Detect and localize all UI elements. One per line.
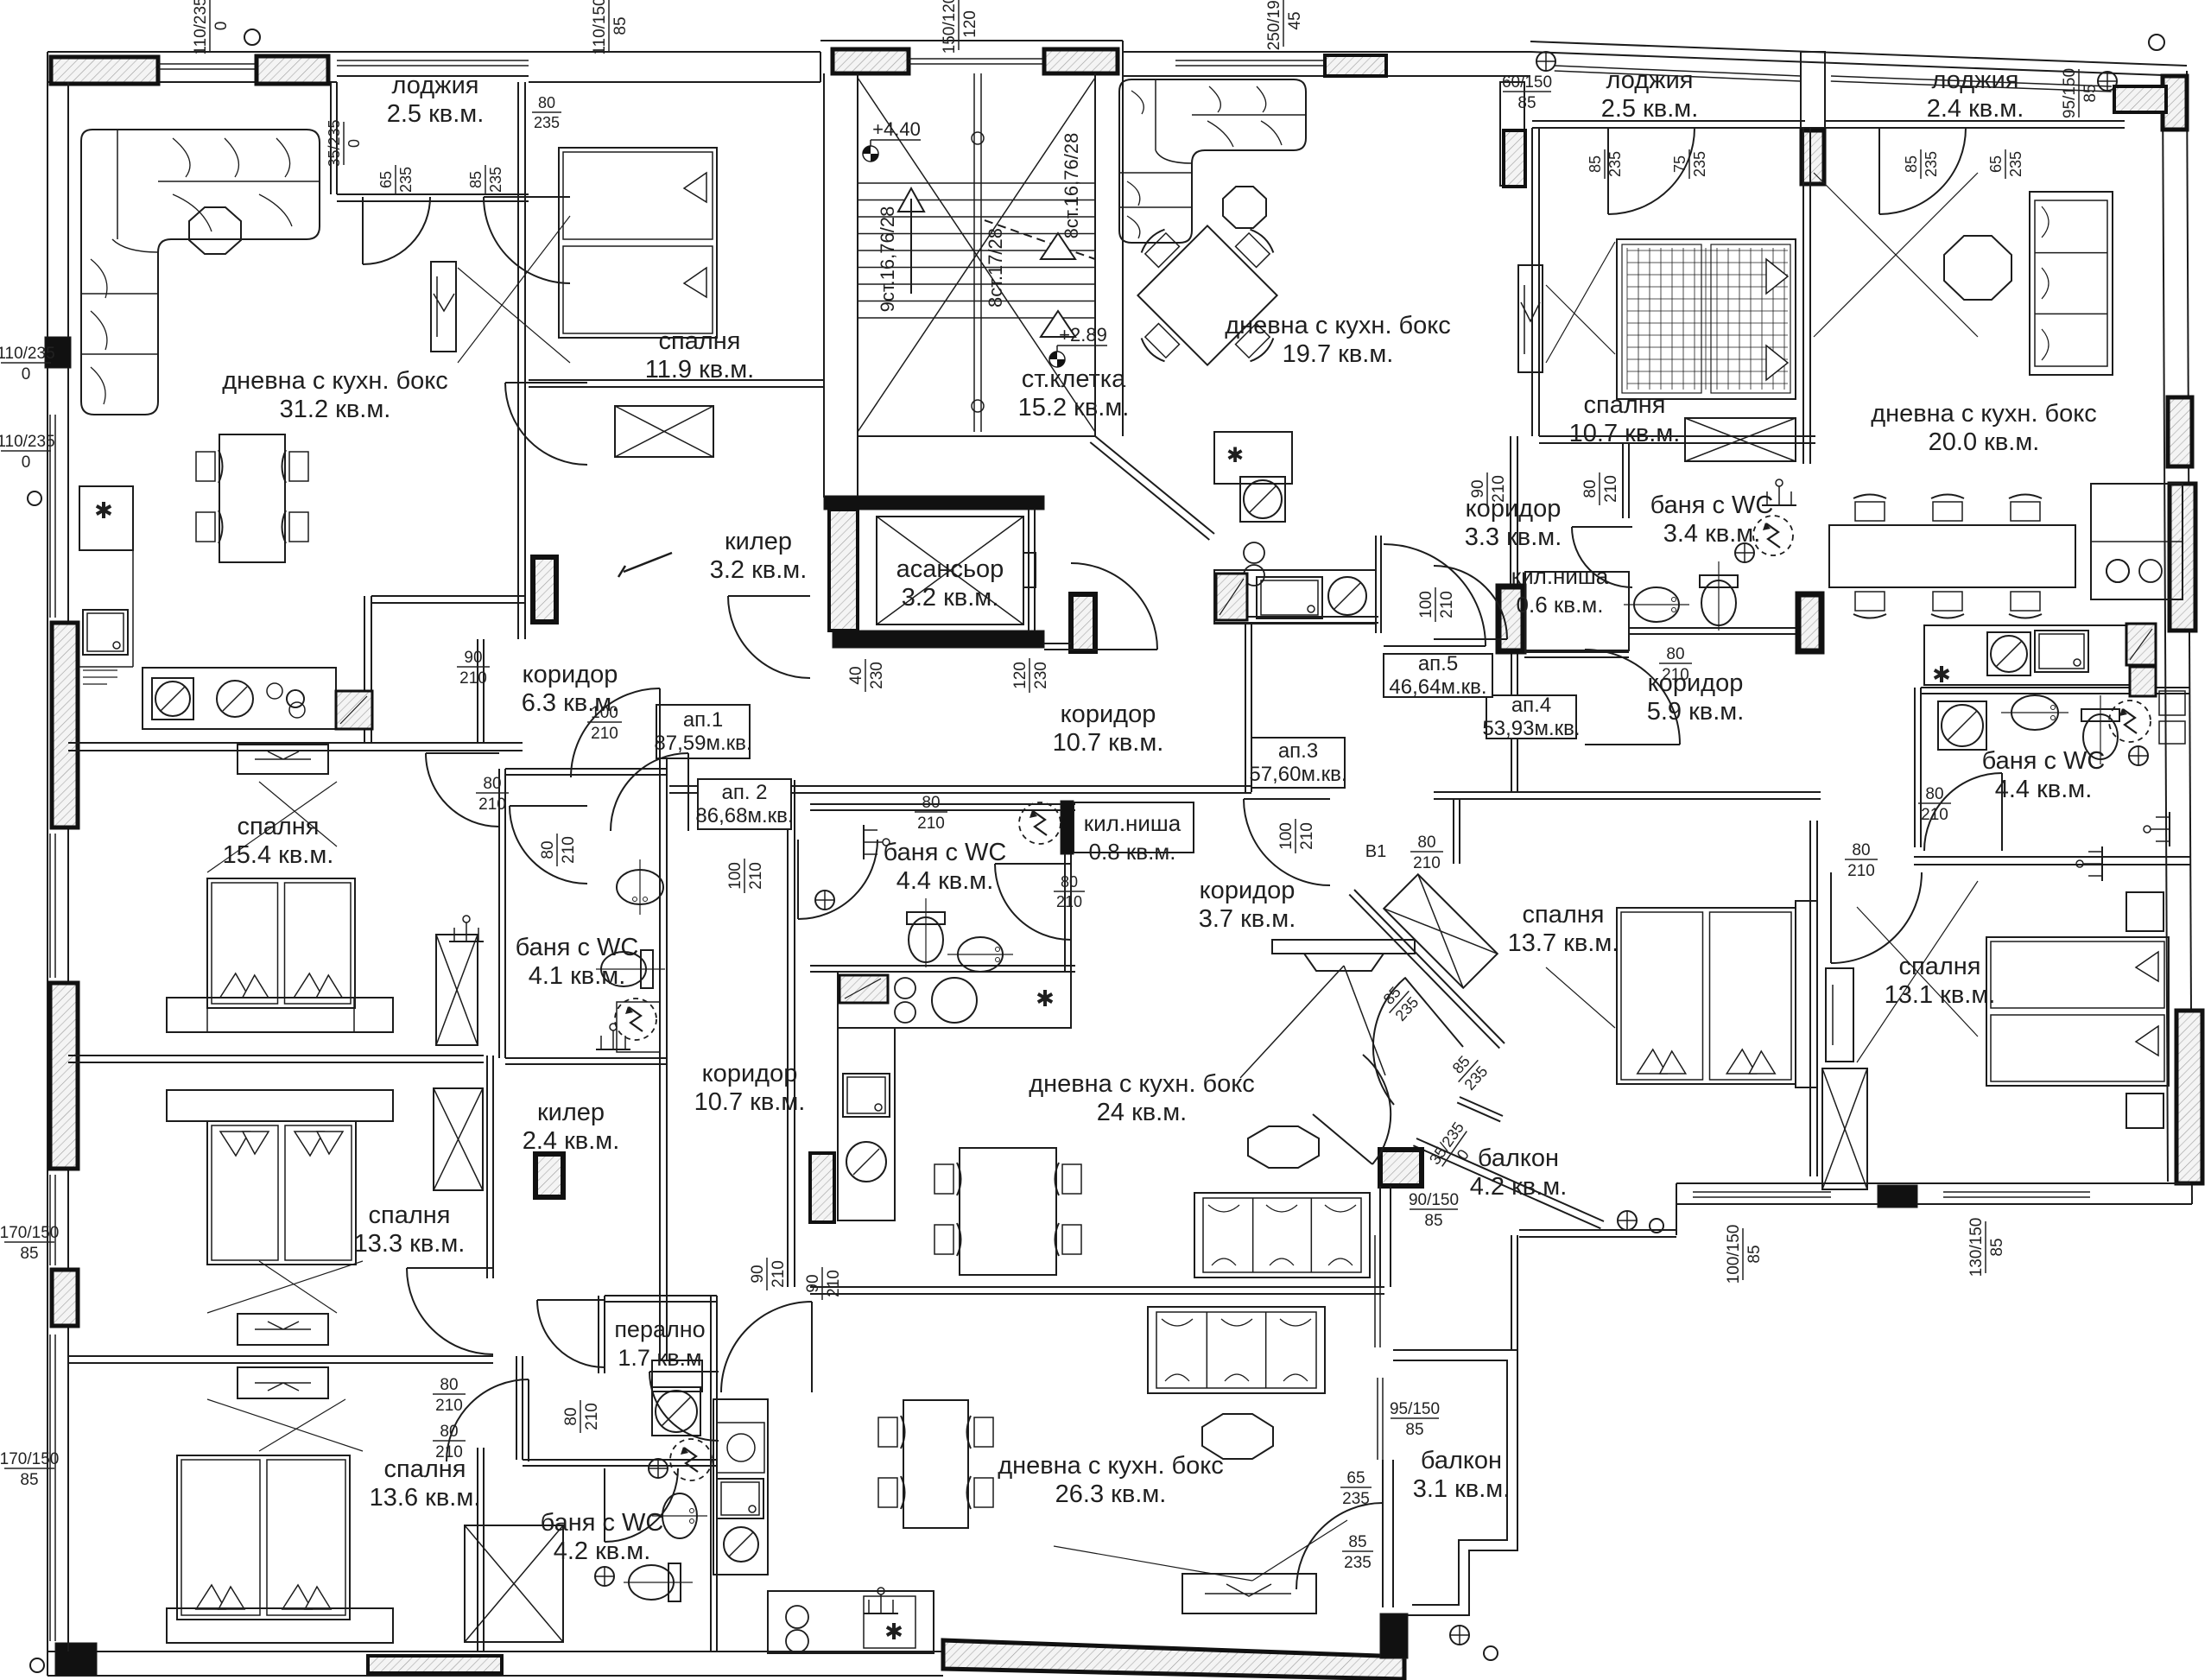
svg-text:210: 210 <box>459 669 487 688</box>
svg-text:235: 235 <box>534 114 560 131</box>
svg-text:210: 210 <box>435 1443 463 1461</box>
svg-text:спалня: спалня <box>238 813 320 840</box>
svg-text:2.5 кв.м.: 2.5 кв.м. <box>1601 95 1699 123</box>
svg-text:85: 85 <box>1988 1238 2006 1256</box>
svg-text:210: 210 <box>1298 822 1316 850</box>
svg-text:210: 210 <box>1490 475 1508 503</box>
svg-text:80: 80 <box>1061 873 1078 891</box>
svg-text:235: 235 <box>2007 151 2024 177</box>
svg-text:80: 80 <box>922 794 940 812</box>
svg-text:210: 210 <box>435 1397 463 1415</box>
svg-text:4.2 кв.м.: 4.2 кв.м. <box>1470 1173 1568 1201</box>
svg-text:210: 210 <box>591 725 618 743</box>
svg-text:87,59м.кв.: 87,59м.кв. <box>654 732 751 755</box>
svg-text:лоджия: лоджия <box>392 72 479 99</box>
svg-text:3.2 кв.м.: 3.2 кв.м. <box>902 584 999 612</box>
svg-text:4.4 кв.м.: 4.4 кв.м. <box>1995 776 2093 803</box>
svg-text:лоджия: лоджия <box>1606 67 1694 94</box>
svg-text:✱: ✱ <box>1226 444 1244 467</box>
svg-text:24 кв.м.: 24 кв.м. <box>1097 1099 1187 1126</box>
svg-text:86,68м.кв.: 86,68м.кв. <box>695 804 793 827</box>
svg-text:80: 80 <box>1666 645 1684 663</box>
svg-text:дневна с кухн. бокс: дневна с кухн. бокс <box>1029 1070 1255 1098</box>
svg-text:ап. 2: ап. 2 <box>721 781 767 804</box>
svg-text:коридор: коридор <box>702 1060 798 1087</box>
svg-text:90: 90 <box>464 649 482 667</box>
svg-text:спалня: спалня <box>1523 901 1605 929</box>
svg-text:спалня: спалня <box>1584 391 1666 419</box>
svg-text:110/235: 110/235 <box>0 433 55 451</box>
svg-text:210: 210 <box>1921 806 1948 824</box>
svg-text:90: 90 <box>1469 479 1487 498</box>
svg-text:коридор: коридор <box>1200 877 1296 904</box>
svg-text:75: 75 <box>1671 155 1688 173</box>
svg-text:асансьор: асансьор <box>896 555 1004 583</box>
svg-text:0.6 кв.м.: 0.6 кв.м. <box>1517 592 1604 618</box>
svg-text:210: 210 <box>1662 666 1689 684</box>
svg-text:✱: ✱ <box>1036 986 1055 1011</box>
svg-text:250/190: 250/190 <box>1265 0 1283 50</box>
svg-text:килер: килер <box>537 1099 605 1126</box>
svg-text:коридор: коридор <box>523 661 618 688</box>
svg-text:0: 0 <box>22 453 31 472</box>
svg-text:210: 210 <box>583 1403 601 1430</box>
svg-text:65: 65 <box>377 171 395 188</box>
svg-text:лоджия: лоджия <box>1932 67 2019 94</box>
svg-text:балкон: балкон <box>1421 1447 1502 1474</box>
svg-text:баня с WC: баня с WC <box>541 1509 664 1537</box>
svg-text:19.7 кв.м.: 19.7 кв.м. <box>1283 340 1394 368</box>
svg-text:235: 235 <box>397 167 415 193</box>
svg-text:4.2 кв.м.: 4.2 кв.м. <box>554 1537 651 1565</box>
svg-text:килер: килер <box>725 528 792 555</box>
svg-text:90: 90 <box>804 1274 822 1292</box>
svg-text:235: 235 <box>1606 151 1624 177</box>
svg-text:3.3 кв.м.: 3.3 кв.м. <box>1465 523 1562 551</box>
svg-text:95/150: 95/150 <box>1390 1400 1440 1418</box>
svg-text:85: 85 <box>2081 84 2100 102</box>
svg-text:100: 100 <box>726 862 744 890</box>
svg-text:ап.5: ап.5 <box>1418 652 1458 675</box>
svg-text:85: 85 <box>20 1471 38 1489</box>
svg-text:баня с WC: баня с WC <box>1650 491 1774 519</box>
svg-text:13.3 кв.м.: 13.3 кв.м. <box>354 1230 466 1258</box>
svg-text:120: 120 <box>1011 662 1029 689</box>
svg-text:8ст.16,76/28: 8ст.16,76/28 <box>1061 133 1082 239</box>
svg-text:235: 235 <box>487 167 504 193</box>
svg-text:спалня: спалня <box>369 1201 451 1229</box>
svg-text:коридор: коридор <box>1466 495 1562 523</box>
svg-text:+4.40: +4.40 <box>872 118 921 140</box>
svg-text:85: 85 <box>467 171 485 188</box>
svg-text:26.3 кв.м.: 26.3 кв.м. <box>1055 1480 1167 1508</box>
svg-text:210: 210 <box>478 796 506 814</box>
svg-text:210: 210 <box>1438 591 1456 618</box>
svg-text:100/150: 100/150 <box>1725 1225 1743 1284</box>
svg-text:15.2 кв.м.: 15.2 кв.м. <box>1018 394 1130 422</box>
svg-text:40: 40 <box>847 666 865 684</box>
svg-text:100: 100 <box>591 704 618 722</box>
svg-text:53,93м.кв.: 53,93м.кв. <box>1482 717 1580 740</box>
svg-text:235: 235 <box>1342 1490 1370 1508</box>
svg-text:80: 80 <box>1925 785 1943 803</box>
svg-text:3.1 кв.м.: 3.1 кв.м. <box>1413 1475 1511 1503</box>
svg-text:ст.клетка: ст.клетка <box>1022 365 1126 393</box>
svg-text:90/150: 90/150 <box>1409 1191 1459 1209</box>
svg-text:баня с WC: баня с WC <box>516 934 639 961</box>
svg-text:80: 80 <box>440 1376 458 1394</box>
svg-text:85: 85 <box>1903 155 1920 173</box>
svg-text:65: 65 <box>1346 1469 1365 1487</box>
svg-text:45: 45 <box>1286 11 1304 29</box>
svg-text:110/235: 110/235 <box>0 345 55 363</box>
svg-text:95/150: 95/150 <box>2061 68 2079 118</box>
svg-text:110/150: 110/150 <box>591 0 609 55</box>
svg-text:170/150: 170/150 <box>0 1450 59 1468</box>
svg-text:5.9 кв.м.: 5.9 кв.м. <box>1647 698 1745 726</box>
svg-text:перално: перално <box>614 1316 705 1342</box>
svg-text:3.7 кв.м.: 3.7 кв.м. <box>1199 905 1296 933</box>
svg-text:ап.1: ап.1 <box>683 708 723 732</box>
svg-text:10.7 кв.м.: 10.7 кв.м. <box>1053 729 1164 757</box>
svg-text:0.8 кв.м.: 0.8 кв.м. <box>1089 839 1176 865</box>
svg-text:170/150: 170/150 <box>0 1224 59 1242</box>
svg-text:0: 0 <box>345 139 363 148</box>
svg-text:80: 80 <box>1852 841 1870 859</box>
svg-text:13.7 кв.м.: 13.7 кв.м. <box>1508 929 1619 957</box>
svg-text:B1: B1 <box>1365 842 1386 861</box>
svg-text:✱: ✱ <box>884 1619 903 1645</box>
svg-text:10.7 кв.м.: 10.7 кв.м. <box>694 1088 806 1116</box>
svg-text:210: 210 <box>1602 475 1620 503</box>
svg-text:85: 85 <box>611 16 630 35</box>
svg-text:2.4 кв.м.: 2.4 кв.м. <box>523 1127 620 1155</box>
svg-text:80: 80 <box>562 1407 580 1425</box>
svg-text:8ст.17/28: 8ст.17/28 <box>985 228 1006 307</box>
svg-text:210: 210 <box>825 1270 843 1297</box>
svg-text:85: 85 <box>1745 1245 1764 1263</box>
svg-text:110/235: 110/235 <box>192 0 210 55</box>
svg-text:15.4 кв.м.: 15.4 кв.м. <box>223 841 334 869</box>
svg-text:150/120: 150/120 <box>941 0 959 54</box>
svg-text:235: 235 <box>1344 1554 1372 1572</box>
svg-text:80: 80 <box>483 775 501 793</box>
svg-text:1.7 кв.м: 1.7 кв.м <box>618 1345 701 1371</box>
svg-text:спалня: спалня <box>1899 953 1981 980</box>
svg-text:210: 210 <box>1056 893 1082 910</box>
svg-text:235: 235 <box>1923 151 1940 177</box>
svg-text:80: 80 <box>1581 479 1600 498</box>
svg-text:4.4 кв.м.: 4.4 кв.м. <box>896 867 994 895</box>
svg-text:80: 80 <box>538 94 555 111</box>
svg-text:10.7 кв.м.: 10.7 кв.м. <box>1569 420 1681 447</box>
svg-text:дневна с кухн. бокс: дневна с кухн. бокс <box>222 367 448 395</box>
svg-text:100: 100 <box>1417 591 1435 618</box>
svg-text:210: 210 <box>917 815 945 833</box>
svg-text:80: 80 <box>440 1423 458 1441</box>
svg-text:210: 210 <box>1847 862 1875 880</box>
svg-text:120: 120 <box>961 10 979 38</box>
svg-text:дневна с кухн. бокс: дневна с кухн. бокс <box>1871 400 2097 428</box>
svg-text:57,60м.кв.: 57,60м.кв. <box>1249 763 1346 786</box>
svg-text:2.5 кв.м.: 2.5 кв.м. <box>387 100 485 128</box>
svg-text:90: 90 <box>749 1265 767 1283</box>
svg-text:кил.ниша: кил.ниша <box>1511 563 1609 589</box>
svg-text:3.2 кв.м.: 3.2 кв.м. <box>710 556 808 584</box>
svg-text:✱: ✱ <box>94 498 113 523</box>
svg-text:85: 85 <box>1424 1212 1442 1230</box>
svg-text:0: 0 <box>212 22 231 31</box>
svg-text:85: 85 <box>1517 94 1536 112</box>
svg-text:дневна с кухн. бокс: дневна с кухн. бокс <box>998 1452 1224 1480</box>
svg-text:85: 85 <box>1587 155 1604 173</box>
svg-text:210: 210 <box>770 1260 788 1288</box>
svg-text:спалня: спалня <box>659 327 741 355</box>
svg-text:+2.89: +2.89 <box>1059 324 1107 346</box>
svg-text:9ст.16,76/28: 9ст.16,76/28 <box>877 206 898 313</box>
svg-text:2.4 кв.м.: 2.4 кв.м. <box>1927 95 2024 123</box>
svg-text:210: 210 <box>560 836 578 864</box>
svg-text:60/150: 60/150 <box>1502 73 1552 92</box>
svg-text:ап.4: ап.4 <box>1511 694 1551 717</box>
svg-text:4.1 кв.м.: 4.1 кв.м. <box>529 962 626 990</box>
svg-text:кил.ниша: кил.ниша <box>1084 810 1182 836</box>
svg-text:ап.3: ап.3 <box>1278 739 1318 763</box>
svg-text:85: 85 <box>1348 1533 1366 1551</box>
svg-text:коридор: коридор <box>1061 701 1156 728</box>
svg-text:11.9 кв.м.: 11.9 кв.м. <box>645 356 755 384</box>
svg-text:31.2 кв.м.: 31.2 кв.м. <box>280 396 391 423</box>
svg-text:230: 230 <box>868 662 886 689</box>
svg-text:✱: ✱ <box>1932 662 1951 688</box>
svg-text:80: 80 <box>539 840 557 859</box>
svg-text:85: 85 <box>20 1245 38 1263</box>
svg-text:210: 210 <box>747 862 765 890</box>
svg-text:65: 65 <box>1987 155 2005 173</box>
svg-text:80: 80 <box>1417 834 1435 852</box>
svg-text:46,64м.кв.: 46,64м.кв. <box>1389 675 1486 699</box>
svg-text:35/235: 35/235 <box>326 119 343 167</box>
svg-text:235: 235 <box>1691 151 1708 177</box>
svg-text:210: 210 <box>1413 854 1441 872</box>
svg-text:130/150: 130/150 <box>1967 1218 1986 1277</box>
svg-text:100: 100 <box>1277 822 1296 850</box>
svg-text:13.6 кв.м.: 13.6 кв.м. <box>370 1484 481 1512</box>
svg-text:балкон: балкон <box>1478 1144 1559 1172</box>
svg-text:баня с WC: баня с WC <box>884 839 1007 866</box>
svg-text:20.0 кв.м.: 20.0 кв.м. <box>1929 428 2040 456</box>
svg-text:0: 0 <box>22 365 31 384</box>
svg-text:85: 85 <box>1405 1421 1423 1439</box>
svg-text:230: 230 <box>1032 662 1050 689</box>
